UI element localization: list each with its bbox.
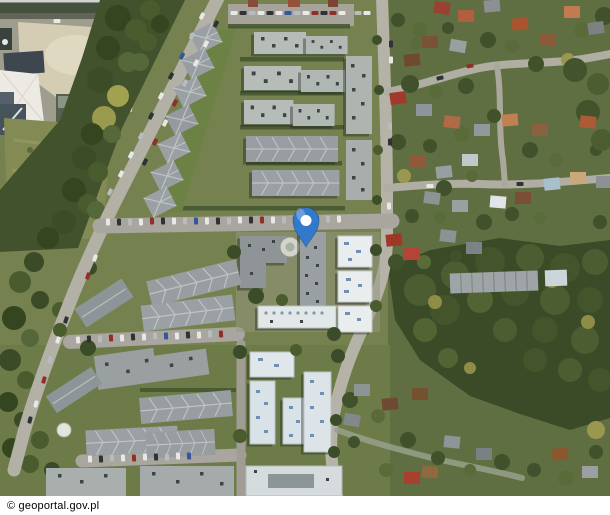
map-viewport[interactable]: © geoportal.gov.pl xyxy=(0,0,610,515)
pin-courtyard-buildings xyxy=(227,232,382,341)
pin-hole xyxy=(301,215,312,226)
white-roof-squares xyxy=(335,236,372,335)
attribution-text: © geoportal.gov.pl xyxy=(0,500,99,512)
attribution-bar: © geoportal.gov.pl xyxy=(0,496,610,515)
street-parking-mid xyxy=(100,221,392,226)
aerial-map[interactable] xyxy=(0,0,610,496)
round-feature xyxy=(57,423,71,437)
